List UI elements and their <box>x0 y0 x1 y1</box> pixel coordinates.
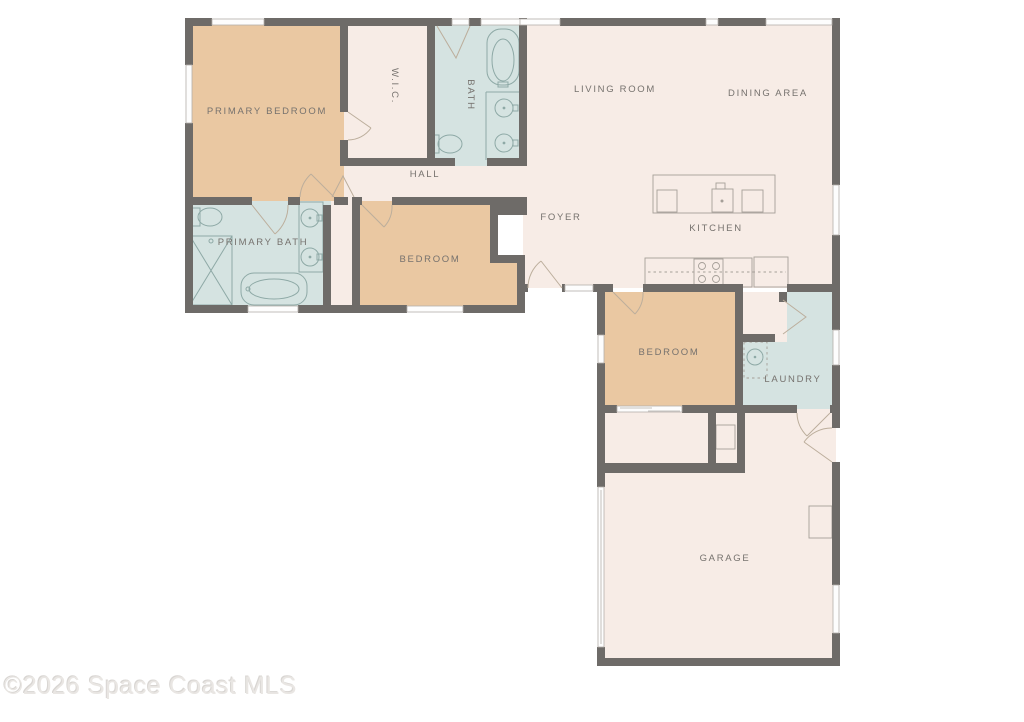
garage-door <box>598 487 604 647</box>
room-label-dining-area: DINING AREA <box>728 88 808 99</box>
floor-plan-drawing: PRIMARY BEDROOM W.I.C. BATH LIVING ROOM … <box>0 0 1024 722</box>
room-label-living-room: LIVING ROOM <box>574 84 656 95</box>
room-living-dining-kitchen <box>523 22 836 288</box>
mls-watermark: ©2026 Space Coast MLS <box>4 672 297 701</box>
room-label-bedroom-2: BEDROOM <box>400 254 461 265</box>
room-garage <box>601 409 836 662</box>
room-bath <box>431 22 523 166</box>
room-label-primary-bedroom: PRIMARY BEDROOM <box>207 106 327 117</box>
room-label-hall: HALL <box>410 169 441 180</box>
room-label-garage: GARAGE <box>700 553 751 564</box>
floor-plan-canvas: PRIMARY BEDROOM W.I.C. BATH LIVING ROOM … <box>0 0 1024 722</box>
room-label-bedroom-3: BEDROOM <box>639 347 700 358</box>
room-bedroom-2-ext <box>356 263 521 309</box>
room-label-primary-bath: PRIMARY BATH <box>218 237 309 248</box>
room-label-laundry: LAUNDRY <box>764 374 821 385</box>
room-label-foyer: FOYER <box>540 212 581 223</box>
room-label-wic: W.I.C. <box>389 68 400 104</box>
closet-slider-doors <box>617 406 682 412</box>
room-label-kitchen: KITCHEN <box>689 223 743 234</box>
room-wic <box>344 22 431 166</box>
room-label-bath: BATH <box>465 79 476 110</box>
